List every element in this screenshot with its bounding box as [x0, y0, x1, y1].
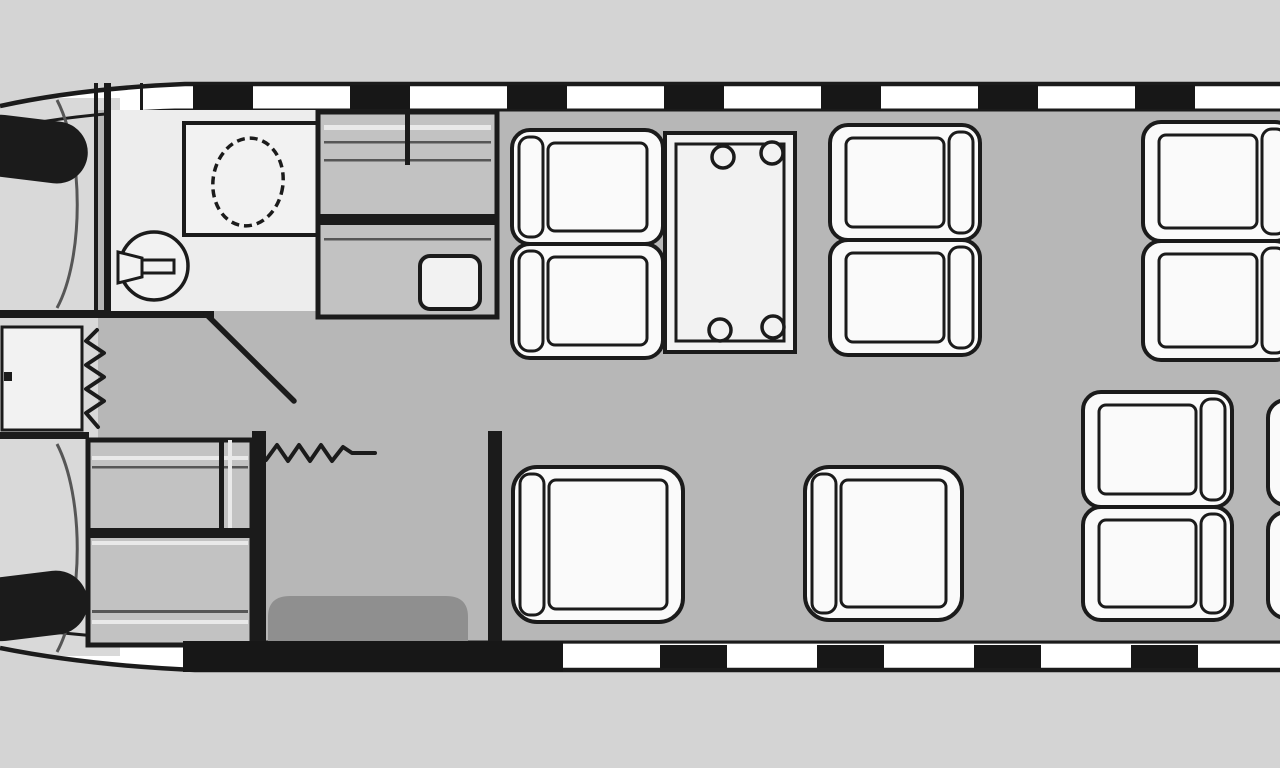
entry-door-panel	[2, 327, 82, 430]
seat-cushion	[841, 480, 946, 607]
seat-outline	[1268, 512, 1280, 618]
cup-holder	[761, 142, 783, 164]
passenger-seat-F2	[1083, 507, 1232, 620]
seat-backrest	[1201, 399, 1225, 500]
seat-backrest	[1262, 248, 1280, 353]
wardrobe-shelf-line	[92, 541, 248, 545]
passenger-seat-D	[513, 467, 683, 622]
cabin-window	[1131, 645, 1198, 668]
mid-cabin-wall	[488, 431, 502, 642]
cabin-window	[1135, 85, 1195, 109]
faucet-spout-icon	[142, 260, 174, 273]
wardrobe-panel-line	[92, 466, 248, 469]
cabin-window	[664, 85, 724, 109]
frame-tick	[140, 83, 143, 111]
floorplan-canvas	[0, 0, 1280, 768]
seat-cushion	[549, 480, 667, 609]
seat-cushion	[1099, 405, 1196, 494]
lavatory-forward-wall	[104, 83, 111, 314]
seat-backrest	[1201, 514, 1225, 613]
lavatory-aft-wall	[0, 310, 214, 318]
cup-holder	[709, 319, 731, 341]
seat-cushion	[846, 138, 944, 227]
entry-door-layer	[183, 641, 563, 672]
cabin-window	[974, 645, 1041, 668]
seat-cushion	[1159, 254, 1257, 347]
faucet-handle-icon	[118, 252, 142, 283]
cabin-window	[821, 85, 881, 109]
cabin-window	[660, 645, 727, 668]
seat-backrest	[519, 137, 543, 237]
main-entry-door	[183, 641, 563, 672]
passenger-seat-B1	[830, 125, 980, 240]
galley	[318, 83, 497, 317]
galley-sink	[420, 256, 480, 309]
passenger-seat-C2	[1143, 241, 1280, 360]
seat-cushion	[548, 143, 647, 231]
seat-cushion	[846, 253, 944, 342]
conference-table-layer	[665, 133, 795, 352]
cabin-window	[350, 85, 410, 109]
seat-backrest	[812, 474, 836, 613]
wardrobe-vertical-shelf	[228, 440, 232, 528]
seat-backrest	[520, 474, 544, 615]
wardrobe-shelf-line	[92, 620, 248, 624]
passenger-seat-C1	[1143, 122, 1280, 241]
passenger-seat-E	[805, 467, 962, 620]
seat-backrest	[949, 132, 973, 233]
wardrobe-vertical-divider	[219, 440, 224, 528]
wardrobe-divider	[88, 528, 252, 538]
cabin-window	[507, 85, 567, 109]
seat-cushion	[548, 257, 647, 345]
vestibule-forward-wall	[252, 431, 266, 642]
door-handle-dot	[4, 372, 12, 381]
passenger-seat-G1	[1268, 400, 1280, 505]
cockpit-bulkhead	[94, 83, 98, 313]
passenger-seat-B2	[830, 240, 980, 355]
entry-wall	[0, 432, 89, 439]
cabin-window	[978, 85, 1038, 109]
seat-backrest	[519, 251, 543, 351]
passenger-seat-F1	[1083, 392, 1232, 507]
seat-backrest	[949, 247, 973, 348]
seat-backrest	[1262, 129, 1280, 234]
wardrobe-shelf-line	[92, 456, 248, 460]
entry-mat	[268, 596, 468, 645]
galley-counter-divider	[318, 214, 497, 225]
seat-cushion	[1099, 520, 1196, 607]
cabin-window	[817, 645, 884, 668]
wardrobe-panel-line	[92, 610, 248, 613]
cup-holder	[762, 316, 784, 338]
seat-cushion	[1159, 135, 1257, 228]
passenger-seat-A1	[512, 130, 663, 244]
seat-outline	[1268, 400, 1280, 505]
passenger-seat-G2	[1268, 512, 1280, 618]
galley-panel-line	[324, 238, 491, 241]
passenger-seat-A2	[512, 244, 663, 358]
cabin-window	[193, 85, 253, 109]
cup-holder	[712, 146, 734, 168]
